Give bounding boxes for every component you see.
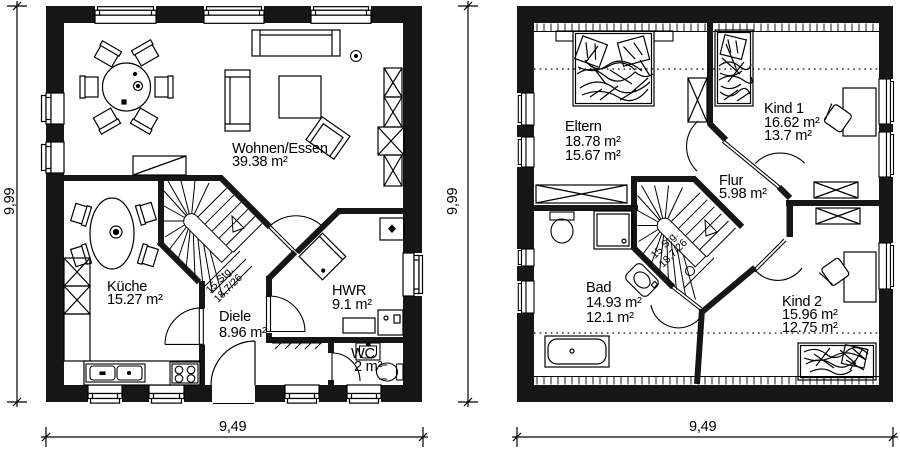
svg-text:9,49: 9,49: [219, 419, 247, 435]
svg-text:Diele: Diele: [219, 309, 251, 325]
svg-text:9,49: 9,49: [689, 419, 717, 435]
svg-text:12.75 m²: 12.75 m²: [782, 320, 838, 336]
svg-text:Eltern: Eltern: [565, 119, 602, 135]
svg-text:2 m²: 2 m²: [354, 359, 383, 375]
svg-text:15.67 m²: 15.67 m²: [565, 148, 621, 164]
svg-text:9,99: 9,99: [445, 187, 461, 215]
svg-text:Bad: Bad: [586, 280, 611, 296]
svg-text:39.38 m²: 39.38 m²: [232, 154, 288, 170]
svg-text:12.1 m²: 12.1 m²: [586, 310, 634, 326]
svg-text:14.93 m²: 14.93 m²: [586, 295, 642, 311]
svg-text:15.27 m²: 15.27 m²: [107, 292, 163, 308]
svg-text:5.98 m²: 5.98 m²: [719, 186, 767, 202]
svg-text:8.96 m²: 8.96 m²: [219, 325, 267, 341]
svg-text:9,99: 9,99: [2, 187, 18, 215]
svg-text:9.1 m²: 9.1 m²: [332, 297, 372, 313]
svg-text:13.7 m²: 13.7 m²: [764, 128, 812, 144]
